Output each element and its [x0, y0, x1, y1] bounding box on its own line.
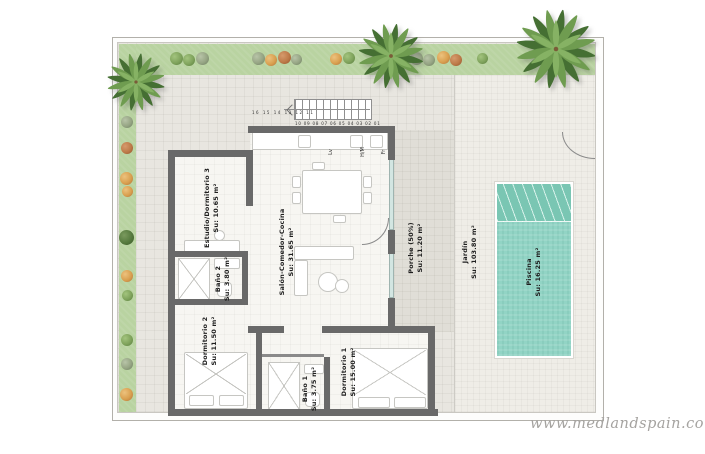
- palm-tree-icon: [512, 5, 600, 93]
- sofa: [294, 246, 354, 260]
- stair-numbers-left: 16 15 14 13 12 11: [252, 110, 314, 115]
- bush-icon: [122, 290, 133, 301]
- washer-label: H/M: [360, 147, 366, 157]
- palm-tree-icon: [355, 20, 427, 92]
- bush-icon: [343, 52, 355, 64]
- wall: [322, 326, 435, 333]
- chair: [363, 176, 372, 188]
- fridge-label: Fr: [381, 150, 387, 155]
- floor-plan: Lv H/M Fr: [0, 0, 705, 454]
- bush-icon: [330, 53, 342, 65]
- shower: [178, 258, 210, 300]
- bush-icon: [291, 54, 302, 65]
- wall: [168, 150, 252, 157]
- fridge-appliance: [370, 135, 383, 148]
- wall: [428, 332, 435, 416]
- bush-icon: [121, 270, 133, 282]
- coffee-table: [335, 279, 349, 293]
- wall: [388, 230, 395, 254]
- bush-icon: [170, 52, 183, 65]
- bush-icon: [252, 52, 265, 65]
- dishwasher-label: Lv: [328, 149, 334, 155]
- bush-icon: [477, 53, 488, 64]
- bush-icon: [437, 51, 450, 64]
- room-label-jardin: Jardín Su: 103.80 m²: [461, 225, 479, 279]
- pool-steps: [497, 184, 571, 222]
- room-label-estudio: Estudio/Dormitorio 3 Su: 10.65 m²: [203, 168, 221, 248]
- pillow: [394, 397, 426, 408]
- chair: [333, 215, 346, 223]
- wall: [242, 251, 248, 305]
- bush-icon: [122, 186, 133, 197]
- kitchen-counter: [252, 132, 388, 150]
- shower: [268, 362, 300, 410]
- bush-icon: [265, 54, 277, 66]
- wall: [168, 150, 175, 416]
- bush-icon: [121, 334, 133, 346]
- room-label-porche: Porche (50%) Su: 11.20 m²: [407, 222, 425, 274]
- chair: [292, 192, 301, 204]
- wall: [388, 126, 395, 160]
- palm-tree-icon: [104, 50, 168, 114]
- room-label-salon: Salón-Comedor-Cocina Su: 31.65 m²: [278, 209, 296, 296]
- room-label-bano2: Baño 2 Su: 3.80 m²: [214, 257, 232, 301]
- chair: [363, 192, 372, 204]
- sink-appliance: [298, 135, 311, 148]
- bush-icon: [183, 54, 195, 66]
- glass-door: [389, 252, 394, 298]
- wall: [168, 299, 248, 305]
- pillow: [189, 395, 214, 406]
- room-label-dorm2: Dormitorio 2 Su: 11.50 m²: [201, 316, 219, 365]
- bush-icon: [121, 142, 133, 154]
- dining-table: [302, 170, 362, 214]
- room-label-piscina: Piscina Su: 16.25 m²: [525, 247, 543, 296]
- watermark: www.medlandspain.com: [530, 416, 705, 432]
- room-label-dorm1: Dormitorio 1 Su: 15.00 m²: [340, 347, 358, 396]
- sofa: [294, 260, 308, 296]
- pillow: [219, 395, 244, 406]
- wall: [248, 326, 284, 333]
- glass-door: [389, 158, 394, 230]
- bush-icon: [196, 52, 209, 65]
- bush-icon: [450, 54, 462, 66]
- wall: [256, 332, 262, 416]
- chair: [312, 162, 325, 170]
- wall: [324, 357, 330, 416]
- hob-appliance: [350, 135, 363, 148]
- bush-icon: [120, 388, 133, 401]
- bush-icon: [278, 51, 291, 64]
- wall: [248, 126, 394, 133]
- bush-icon: [121, 358, 133, 370]
- bed-cover: [354, 350, 426, 395]
- bush-icon: [121, 116, 133, 128]
- wall: [262, 354, 324, 357]
- pillow: [358, 397, 390, 408]
- wall: [246, 150, 253, 206]
- bush-icon: [119, 230, 134, 245]
- wall: [168, 251, 248, 257]
- room-label-bano1: Baño 1 Su: 3.75 m²: [301, 367, 319, 411]
- stair-numbers-right: 10 09 08 07 06 05 04 03 02 01: [295, 121, 381, 126]
- chair: [292, 176, 301, 188]
- bush-icon: [120, 172, 133, 185]
